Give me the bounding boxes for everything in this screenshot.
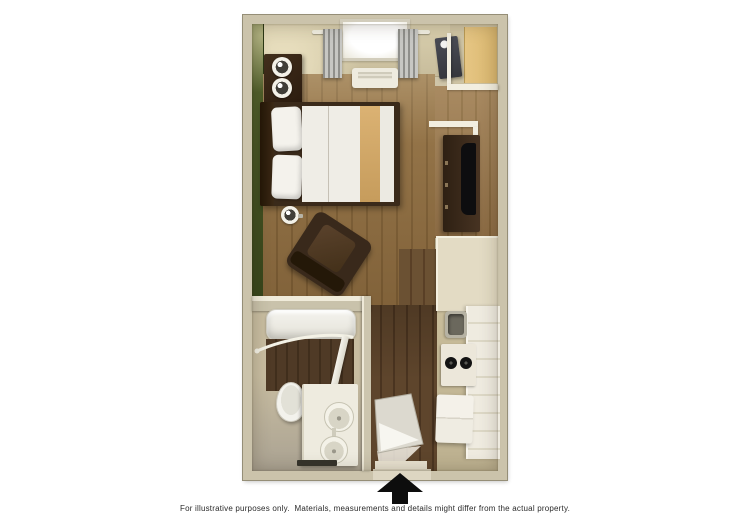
vanity-sink bbox=[324, 402, 354, 432]
vanity bbox=[302, 384, 358, 466]
entrance-arrow-stem bbox=[392, 491, 408, 504]
stove-burner bbox=[445, 357, 457, 369]
bathroom bbox=[252, 296, 371, 471]
disclaimer-caption: For illustrative purposes only. Material… bbox=[0, 504, 750, 513]
tv-console bbox=[443, 135, 480, 232]
pillow bbox=[271, 154, 303, 199]
bed bbox=[260, 102, 400, 206]
bath-mat bbox=[297, 460, 337, 466]
closet-door-panel bbox=[464, 27, 497, 83]
closet-bottom-wall bbox=[447, 84, 498, 90]
alcove-wall-horizontal bbox=[429, 121, 478, 127]
curtain-left bbox=[323, 29, 342, 78]
kitchen-counter-block bbox=[436, 236, 498, 311]
shower-curtain-rod bbox=[252, 329, 364, 367]
entrance-arrow-icon bbox=[377, 473, 423, 492]
bed-runner bbox=[360, 106, 380, 202]
kitchen-sink bbox=[445, 311, 467, 338]
floor-lamp-icon bbox=[281, 206, 299, 224]
floorplan bbox=[243, 15, 507, 480]
stove bbox=[441, 344, 476, 386]
entry-door bbox=[369, 305, 437, 469]
duvet bbox=[302, 106, 360, 202]
table-lamp-icon bbox=[272, 57, 292, 77]
table-lamp-icon bbox=[272, 78, 292, 98]
refrigerator bbox=[435, 394, 474, 443]
bed-foot bbox=[380, 106, 394, 202]
closet-partition-wall bbox=[447, 33, 451, 88]
tv bbox=[461, 143, 476, 215]
floorplan-image: For illustrative purposes only. Material… bbox=[0, 0, 750, 525]
kitchen-sink-basin bbox=[448, 314, 464, 335]
stove-burner bbox=[460, 357, 472, 369]
pillow bbox=[271, 106, 303, 152]
curtain-right bbox=[398, 29, 418, 78]
ac-unit bbox=[352, 68, 398, 88]
walkway-wood-floor bbox=[399, 249, 436, 309]
floor-lamp-base bbox=[298, 214, 303, 218]
